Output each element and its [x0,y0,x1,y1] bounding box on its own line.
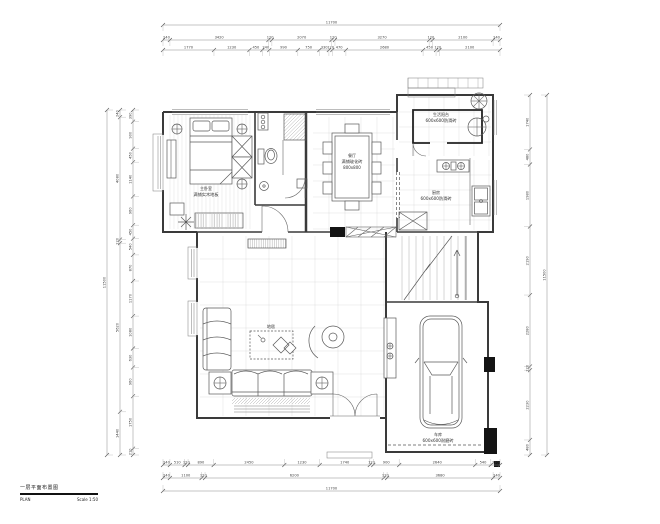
dim-label: 240 [163,474,171,478]
dim-label: 1230 [227,46,237,50]
shower-shelf [258,113,268,130]
dim-label: 1770 [184,46,194,50]
bedroom-label: 主卧室 [200,185,212,191]
drawing-title: 一层平面布置图 [20,484,98,491]
dim-label: 2100 [458,36,468,40]
column-block [484,357,495,372]
dim-label: 240 [493,474,501,478]
dim-label: 1080 [129,327,133,337]
dim-label: 2100 [465,46,475,50]
kitchen-floor-note: 600x600防滑砖 [420,195,451,202]
coffee-table [273,337,296,354]
dining-room: 餐厅 满铺玻化砖 800x800 [323,124,396,237]
dining-label: 餐厅 [348,152,356,158]
dim-label: 990 [280,46,288,50]
balcony: 生活阳台 600x600防滑砖 [413,110,489,156]
chaise-sofa [203,308,231,370]
dining-floor-note: 满铺玻化砖 [342,158,363,165]
column-block [484,428,497,454]
dresser [167,140,176,178]
dim-label: 1980 [526,190,530,200]
dim-label: 900 [129,131,133,139]
bedroom: 主卧室 满铺实木地板 [167,118,252,230]
dim-label: 2280 [526,325,530,335]
dim-label: 450 [129,228,133,236]
dim-label: 1440 [116,428,120,438]
teapot-icon [261,338,265,342]
entry-step [327,452,372,458]
dim-label: 6200 [290,474,300,478]
bedroom-floor-note: 满铺实木地板 [193,191,219,198]
living-room: 地毯 [203,308,396,458]
dim-label: 240 [262,46,270,50]
dim-label: 2680 [380,46,390,50]
dim-label: 1170 [129,293,133,303]
dim-label: 240 [163,36,171,40]
dim-label: 1100 [181,474,191,478]
dim-label: 11700 [326,21,338,25]
dim-label: 510 [174,461,182,465]
rug-label: 地毯 [267,323,275,329]
kitchen-sliding-door [397,172,400,218]
rug [250,331,296,359]
dim-label: 320 [492,461,500,465]
stairs [404,236,466,300]
dim-label: 2450 [244,461,254,465]
balcony-label: 生活阳台 [433,111,449,117]
dim-label: 240 [163,461,171,465]
car [415,316,467,428]
dim-label: 3270 [377,36,387,40]
title-underline [20,493,98,496]
dim-label: 11500 [543,269,547,281]
dim-label: 2640 [433,461,443,465]
dim-label: 540 [129,243,133,251]
dim-label: 3680 [436,474,446,478]
dim-label: 480 [526,443,530,451]
dim-label: 2070 [297,36,307,40]
plant-star-icon [178,214,194,230]
threshold-block [330,227,345,237]
dim-label: 450 [129,151,133,159]
dim-label: 240 [493,36,501,40]
dim-label: 630 [129,354,133,362]
dim-label: 11500 [103,276,107,288]
dim-label: 1140 [129,174,133,184]
dim-label: 240 [116,109,120,117]
garage: 车库 600x600耐磨砖 [388,316,497,454]
dim-label: 390 [129,112,133,120]
balcony-door [413,143,426,156]
kitchen-sink [472,186,490,216]
dim-label: 540 [480,461,488,465]
garage-label: 车库 [434,431,442,437]
drawing-name: PLAN [20,497,30,502]
dim-label: 960 [129,378,133,386]
bedroom-rug [195,213,243,228]
dim-label: 1230 [297,461,307,465]
dim-label: 210 [129,448,133,456]
armchair [309,326,344,358]
bedroom-door [262,206,288,232]
dim-label: 1740 [340,461,350,465]
dining-floor-note2: 800x800 [343,165,361,170]
dim-label: 900 [383,461,391,465]
dim-label: 450 [252,46,260,50]
bathroom [258,113,307,198]
window-planter [248,239,286,248]
dim-label: 120 [526,364,530,372]
wash-basin [260,182,269,191]
dim-label: 2190 [526,255,530,265]
dim-label: 1750 [129,417,133,427]
dim-label: 470 [336,46,344,50]
dim-label: 1740 [526,117,530,127]
balcony-floor-note: 600x600防滑砖 [425,117,456,124]
floor-plan-sheet: 主卧室 满铺实木地板 [0,0,660,524]
dim-label: 4080 [116,173,120,183]
dimension-annotations: 1170024034201202070120327012021002401770… [103,21,550,493]
beam-hatch [346,227,396,237]
dim-label: 750 [305,46,313,50]
dim-label: 3420 [215,36,225,40]
dim-label: 120 [116,237,120,245]
dim-label: 450 [426,46,434,50]
dim-label: 5620 [116,322,120,332]
kitchen-label: 厨房 [432,189,440,195]
dim-label: 2230 [526,400,530,410]
drawing-scale: Scale 1:50 [77,497,98,502]
toilet [258,149,277,165]
dim-label: 890 [197,461,205,465]
kitchen: 厨房 600x600防滑砖 [397,158,491,230]
dim-label: 11700 [326,487,338,491]
nightstand-wardrobe [232,136,252,178]
floor-plan-canvas: 主卧室 满铺实木地板 [0,0,660,524]
sofa [232,370,312,396]
entry-double-door [330,394,380,416]
dim-label: 480 [526,153,530,161]
side-chest [170,203,184,215]
dim-label: 870 [129,264,133,272]
flue-shaft [399,212,427,230]
dim-label: 960 [129,207,133,215]
bed [190,118,232,184]
title-block: 一层平面布置图 PLAN Scale 1:50 [20,484,98,502]
garage-floor-note: 600x600耐磨砖 [422,437,453,444]
